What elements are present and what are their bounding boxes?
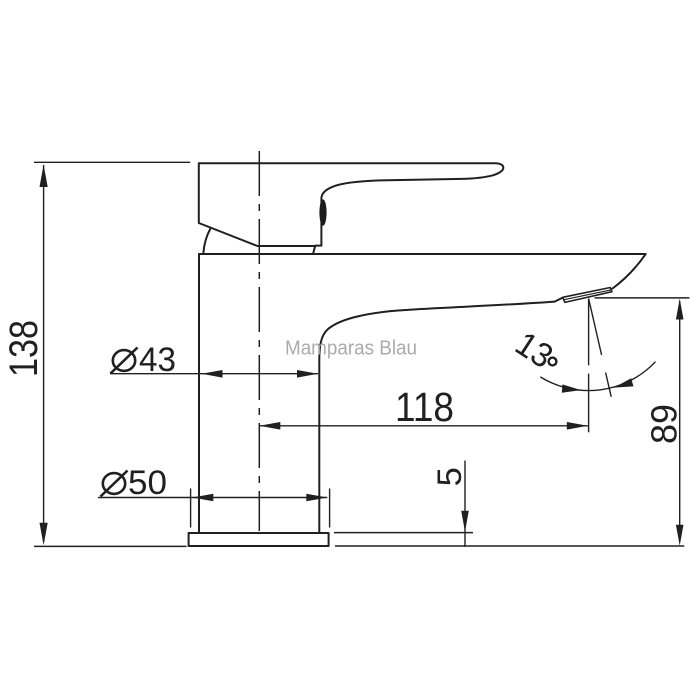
svg-text:50: 50 xyxy=(128,464,167,502)
svg-text:138: 138 xyxy=(2,320,46,377)
svg-text:43: 43 xyxy=(139,341,176,379)
svg-text:Mamparas Blau: Mamparas Blau xyxy=(285,337,417,360)
svg-text:89: 89 xyxy=(644,404,685,444)
svg-text:118: 118 xyxy=(395,384,454,430)
svg-text:5: 5 xyxy=(431,467,469,486)
